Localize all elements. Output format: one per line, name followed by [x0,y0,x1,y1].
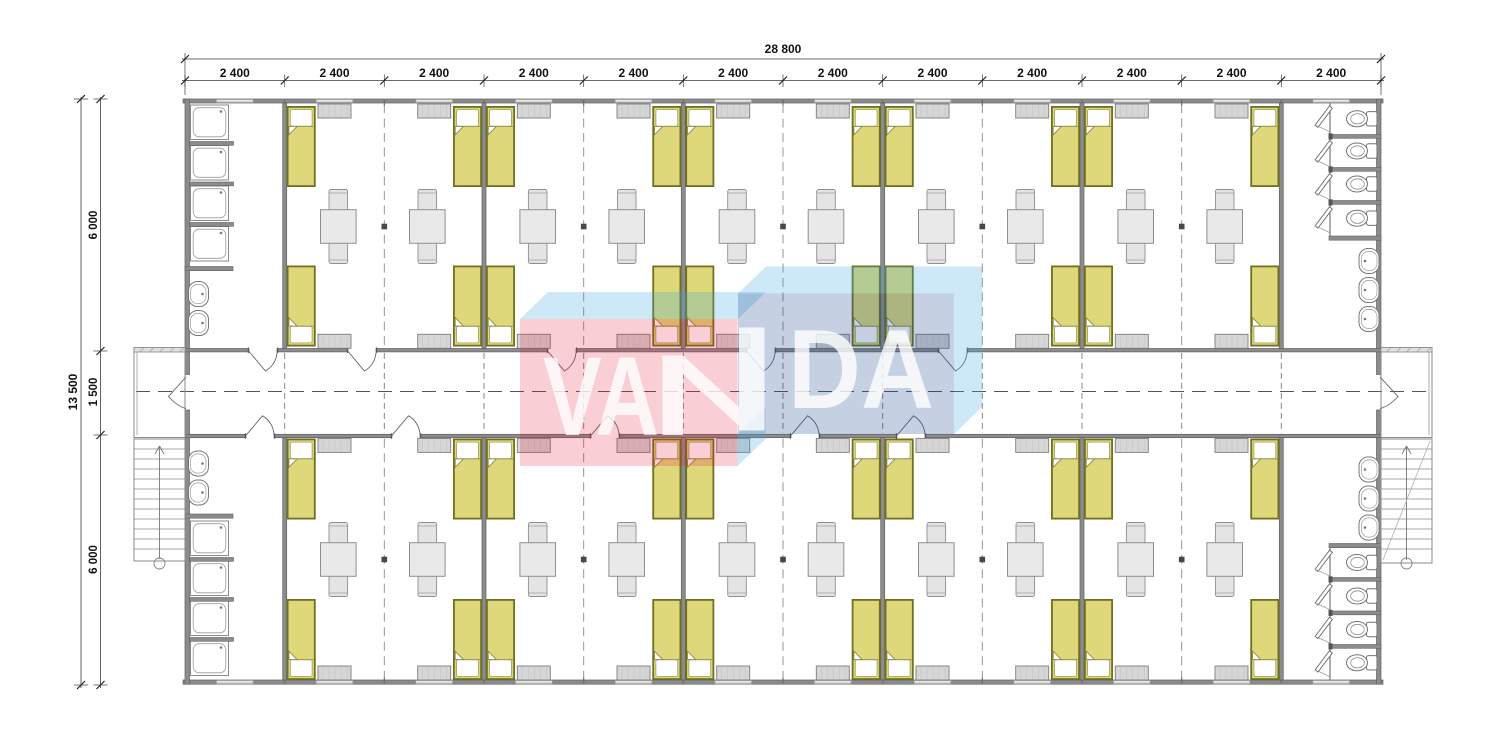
svg-text:2 400: 2 400 [319,66,349,80]
svg-text:2 400: 2 400 [419,66,449,80]
svg-text:1 500: 1 500 [88,378,100,407]
svg-text:2 400: 2 400 [1017,66,1047,80]
svg-text:2 400: 2 400 [1117,66,1147,80]
svg-text:28 800: 28 800 [765,42,802,56]
svg-text:2 400: 2 400 [618,66,648,80]
svg-text:2 400: 2 400 [220,66,250,80]
svg-text:6 000: 6 000 [88,545,100,574]
svg-text:6 000: 6 000 [88,211,100,240]
svg-text:2 400: 2 400 [519,66,549,80]
svg-text:VA: VA [543,334,659,459]
svg-text:DA: DA [788,307,934,432]
svg-text:2 400: 2 400 [917,66,947,80]
svg-text:2 400: 2 400 [718,66,748,80]
svg-text:13 500: 13 500 [66,373,80,410]
svg-text:2 400: 2 400 [1316,66,1346,80]
svg-text:2 400: 2 400 [1216,66,1246,80]
svg-text:2 400: 2 400 [818,66,848,80]
